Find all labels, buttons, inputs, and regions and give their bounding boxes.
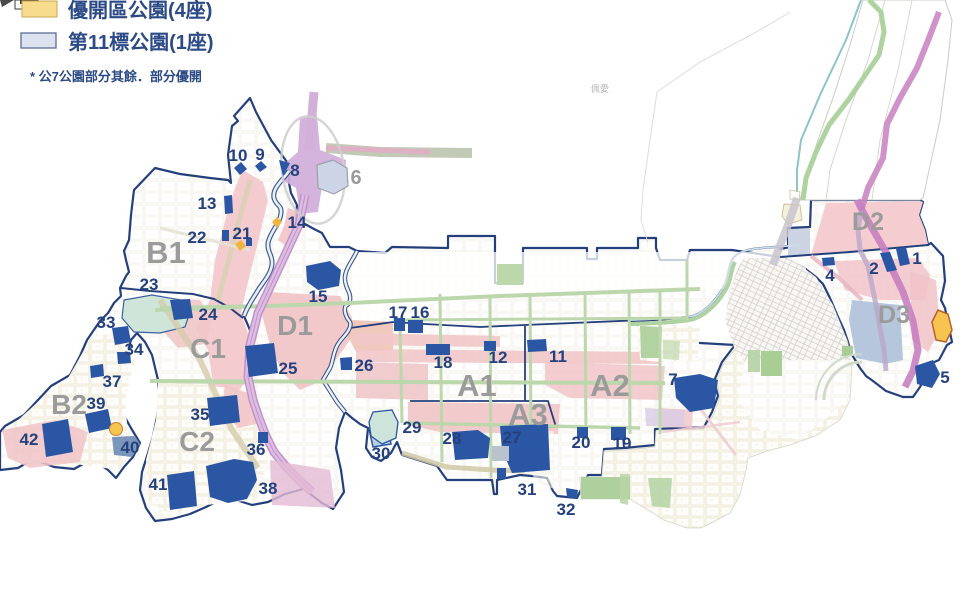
svg-text:14: 14 [288, 213, 307, 232]
svg-text:C1: C1 [190, 333, 226, 364]
svg-text:4: 4 [825, 266, 835, 285]
svg-text:20: 20 [572, 433, 591, 452]
svg-text:36: 36 [247, 440, 266, 459]
svg-text:17: 17 [389, 303, 408, 322]
svg-text:19: 19 [613, 434, 632, 453]
svg-text:15: 15 [309, 287, 328, 306]
svg-text:B1: B1 [146, 235, 186, 270]
svg-text:40: 40 [121, 438, 140, 457]
svg-text:42: 42 [20, 430, 39, 449]
svg-text:10: 10 [229, 146, 248, 165]
svg-text:13: 13 [198, 194, 217, 213]
svg-text:1: 1 [912, 249, 921, 268]
svg-text:6: 6 [350, 167, 361, 189]
svg-text:35: 35 [191, 405, 210, 424]
svg-text:9: 9 [255, 145, 264, 164]
svg-text:27: 27 [503, 428, 522, 447]
svg-text:30: 30 [372, 444, 391, 463]
svg-text:38: 38 [259, 479, 278, 498]
svg-text:28: 28 [443, 429, 462, 448]
svg-text:A2: A2 [590, 368, 630, 403]
svg-text:39: 39 [87, 394, 106, 413]
svg-text:D2: D2 [852, 208, 884, 236]
svg-text:7: 7 [668, 370, 677, 389]
svg-text:32: 32 [557, 500, 576, 519]
svg-text:* 公7公園部分其餘．部分優開: * 公7公園部分其餘．部分優開 [30, 69, 202, 84]
svg-text:26: 26 [355, 356, 374, 375]
svg-text:23: 23 [140, 275, 159, 294]
svg-text:16: 16 [411, 303, 430, 322]
svg-text:21: 21 [233, 224, 252, 243]
svg-text:A3: A3 [508, 397, 548, 432]
svg-text:D1: D1 [277, 310, 313, 341]
svg-text:29: 29 [403, 418, 422, 437]
svg-text:12: 12 [489, 348, 508, 367]
svg-text:2: 2 [869, 259, 878, 278]
svg-text:37: 37 [103, 372, 122, 391]
svg-text:34: 34 [125, 340, 144, 359]
svg-text:18: 18 [434, 353, 453, 372]
svg-text:優開區公園(4座): 優開區公園(4座) [67, 0, 212, 22]
svg-text:22: 22 [188, 228, 207, 247]
svg-text:第11標公園(1座): 第11標公園(1座) [68, 30, 214, 54]
svg-text:5: 5 [940, 368, 949, 387]
svg-text:8: 8 [290, 161, 299, 180]
svg-text:A1: A1 [457, 368, 497, 403]
svg-text:31: 31 [518, 480, 537, 499]
svg-text:25: 25 [279, 359, 298, 378]
svg-text:24: 24 [199, 305, 218, 324]
svg-text:41: 41 [149, 475, 168, 494]
svg-text:33: 33 [97, 313, 116, 332]
svg-text:C2: C2 [179, 426, 215, 457]
svg-text:11: 11 [549, 347, 567, 366]
svg-text:B2: B2 [51, 389, 87, 420]
svg-text:D3: D3 [878, 301, 910, 329]
svg-text:佩愛: 佩愛 [591, 83, 609, 94]
